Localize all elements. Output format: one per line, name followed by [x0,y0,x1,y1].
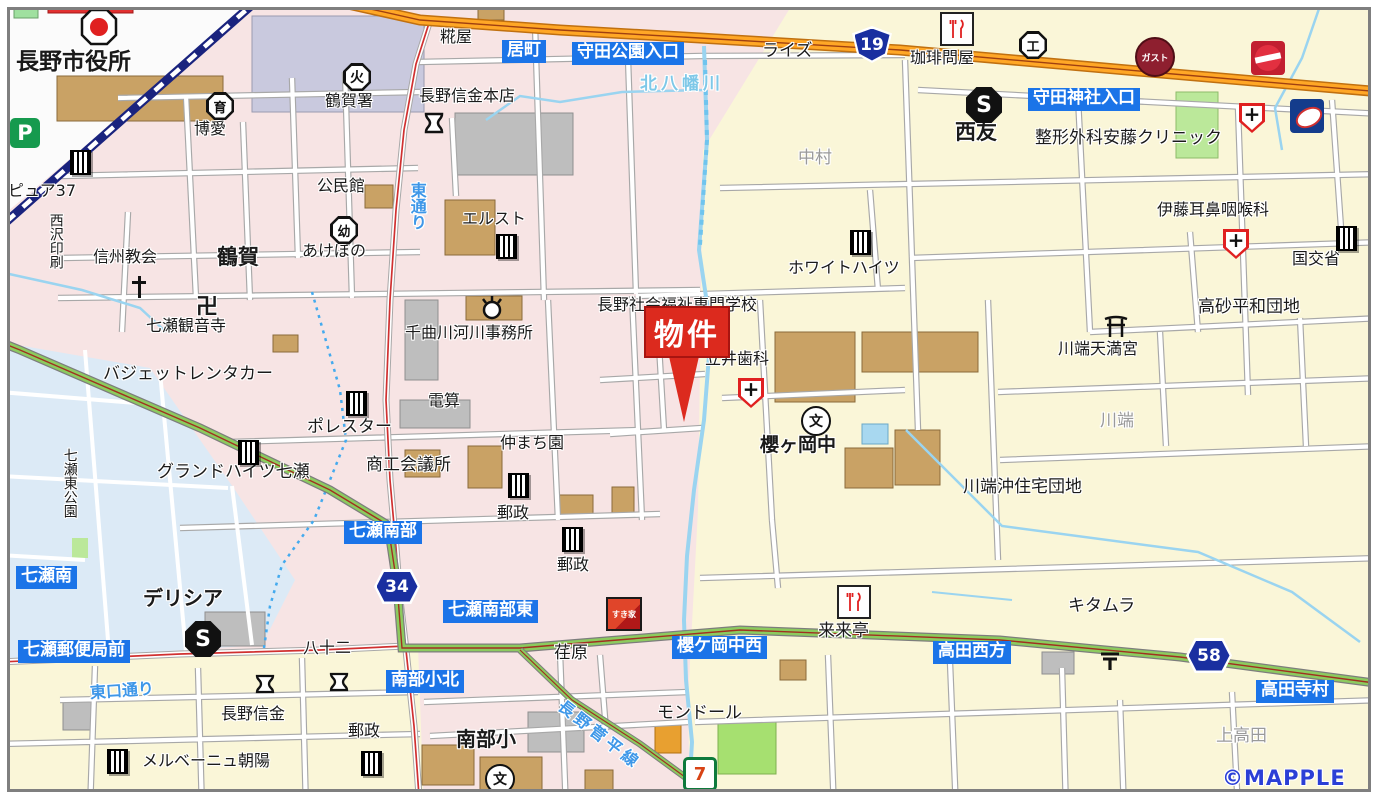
intersection-badge-morita-jinja: 守田神社入口 [1028,88,1140,111]
label-rise: ライズ [762,43,813,61]
label-densan: 電算 [428,393,460,410]
intersection-badge-nanase-yubinkyoku-mae: 七瀬郵便局前 [18,640,130,663]
label-chikumagawa-office: 千曲川河川事務所 [405,325,533,342]
intersection-badge-imachi: 居町 [502,40,546,63]
label-area-kamitakada: 上高田 [1216,728,1267,746]
label-nanase-higashi-park: 七瀬東公園 [62,448,77,518]
building-icon-erusuto [496,234,517,259]
intersection-badge-takada-teramura: 高田寺村 [1256,680,1334,703]
label-pure37: ピュア37 [8,183,76,200]
mapple-attribution: ©MAPPLE [1222,766,1346,790]
label-coffee-tonya: 珈琲問屋 [910,50,974,67]
city-hall-icon [80,8,118,46]
school-icon-nanbu: 文 [485,764,515,792]
label-kawabataoki-danchi: 川端沖住宅団地 [963,479,1082,497]
label-kitamura: キタムラ [1068,598,1135,616]
fire-station-icon: 火 [343,63,371,91]
intersection-badge-takada-seiho: 高田西方 [933,641,1011,664]
bank-icon-hachijuni-1 [252,674,278,700]
label-nanase-kannonji: 七瀬観音寺 [146,318,226,335]
label-merveille-asahi: メルベーニュ朝陽 [142,753,270,770]
label-shinshu-church: 信州教会 [93,249,157,266]
label-yusei-3: 郵政 [348,723,380,740]
label-kojiya: 糀屋 [440,29,472,46]
label-ando-clinic: 整形外科安藤クリニック [1035,130,1222,148]
building-icon-kokkosho [1336,226,1357,251]
bank-icon-hachijuni-2 [326,672,352,698]
route-34-number: 34 [385,577,409,597]
torii-shrine-icon [1103,313,1129,343]
route-shield-58: 58 [1186,638,1232,673]
kindergarten-icon: 幼 [330,216,358,244]
route-shield-34: 34 [374,569,420,604]
eneos-logo [1251,41,1285,75]
label-area-tsuruga: 鶴賀 [217,246,259,268]
label-erusuto: エルスト [462,211,526,228]
route-58-number: 58 [1197,646,1221,666]
property-marker-label: 物件 [654,310,720,354]
supermarket-icon-seiyu: S [966,87,1002,123]
label-hachijuni-bank: 八十二 [303,640,351,657]
label-mondor: モンドール [657,705,742,723]
sukiya-logo: すき家 [606,597,642,631]
label-ito-ent: 伊藤耳鼻咽喉科 [1157,202,1269,219]
seven-eleven-icon: 7 [683,757,717,791]
parking-icon: P [10,118,40,148]
label-seiyu: 西友 [955,121,997,143]
label-road-higashi-dori: 東通り [408,182,425,230]
label-nagano-shinkin-honten: 長野信金本店 [419,88,515,105]
label-river-kitahachiman: 北八幡川 [640,76,724,94]
school-icon-sakuragaoka: 文 [801,406,831,436]
label-delicia: デリシア [143,588,223,609]
restaurant-icon-rairaitei [837,585,871,619]
label-kokkosho: 国交省 [1292,251,1340,268]
label-nanbu-elementary: 南部小 [456,729,516,750]
intersection-badge-nanbu-sho-kita: 南部小北 [386,670,464,693]
label-white-heights: ホワイトハイツ [788,260,900,277]
factory-icon: 工 [1019,31,1047,59]
label-nagano-shinkin: 長野信金 [221,706,285,723]
intersection-badge-sakuragaoka-nishi: 櫻ケ岡中西 [672,636,767,659]
intersection-badge-nanase-minami: 七瀬南 [16,566,77,589]
label-polestar: ポレスター [307,419,392,437]
label-akebono: あけぼの [302,243,366,260]
post-office-icon [1098,648,1120,670]
temple-manji-icon: 卍 [196,296,218,319]
intersection-badge-nanase-nanbu-higashi: 七瀬南部東 [443,600,538,623]
label-area-kawabata: 川端 [1100,413,1134,431]
lawson-logo [1290,99,1324,133]
building-icon-merveille [107,749,128,774]
label-yusei-1: 郵政 [497,505,529,522]
building-icon-grand-heights [238,440,259,465]
bank-icon-shinkin-honten [420,112,448,140]
intersection-badge-nanase-nanbu: 七瀬南部 [344,521,422,544]
label-takasago-danchi: 高砂平和団地 [1198,299,1300,317]
label-sakuragaoka-junior-high: 櫻ヶ岡中 [760,436,836,456]
building-icon-polestar [346,391,367,416]
label-nakamachien: 仲まち園 [500,435,564,452]
building-icon-pure37 [70,150,91,175]
label-shoko-kaigisho: 商工会議所 [366,457,451,475]
label-budget-rentacar: バジェットレンタカー [103,366,273,384]
map-frame: 長野市役所 鶴賀署 博愛 公民館 あけぼの 鶴賀 信州教会 西沢印刷 七瀬観音寺… [7,7,1371,792]
intersection-badge-morita-koen: 守田公園入口 [572,42,684,65]
nursery-icon: 育 [206,92,234,120]
label-rairaitei: 来来亭 [818,623,869,641]
building-icon-yusei-1 [508,473,529,498]
government-office-icon [478,294,506,326]
church-cross-icon [131,276,147,298]
label-tsuruga-fire-station: 鶴賀署 [325,93,373,110]
gusto-logo: ガスト [1135,37,1175,77]
label-grand-heights-nanase: グランドハイツ七瀬 [157,464,310,482]
label-ebara: 荏原 [554,645,588,663]
building-icon-white-heights [850,230,871,255]
label-nagano-city-hall: 長野市役所 [16,50,131,74]
route-shield-19: 19 [852,26,892,63]
restaurant-icon-coffee [940,12,974,46]
building-icon-yusei-3 [361,751,382,776]
label-hakuai: 博愛 [194,121,226,138]
label-yusei-2: 郵政 [557,557,589,574]
route-19-number: 19 [860,35,884,55]
label-kominkan: 公民館 [317,178,365,195]
property-marker[interactable]: 物件 [644,306,730,358]
map-screenshot: 長野市役所 鶴賀署 博愛 公民館 あけぼの 鶴賀 信州教会 西沢印刷 七瀬観音寺… [0,0,1382,810]
building-icon-yusei-2 [562,527,583,552]
label-kawabata-tenmangu: 川端天満宮 [1058,341,1138,358]
map-canvas[interactable]: 長野市役所 鶴賀署 博愛 公民館 あけぼの 鶴賀 信州教会 西沢印刷 七瀬観音寺… [7,7,1371,792]
supermarket-icon-delicia: S [185,621,221,657]
label-nishizawa-printing: 西沢印刷 [48,213,63,269]
label-area-nakamura: 中村 [798,150,832,168]
property-marker-tail [668,352,700,422]
